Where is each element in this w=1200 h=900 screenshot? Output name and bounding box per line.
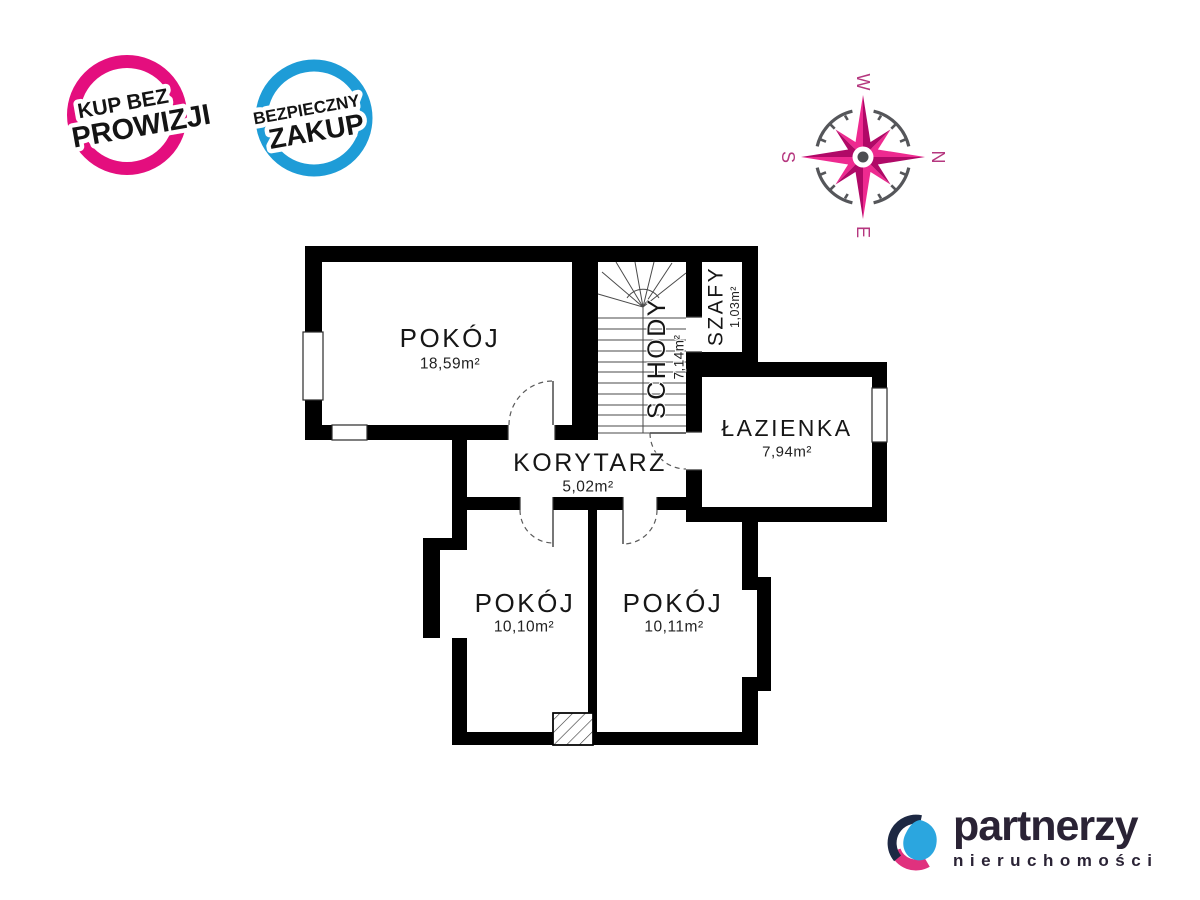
logo-blue-drop — [903, 820, 936, 860]
window-bottom-room1 — [332, 425, 367, 440]
brand-subtitle: nieruchomości — [953, 852, 1158, 869]
door-arc-room1 — [509, 381, 553, 425]
label-closet-area: 1,03m² — [728, 286, 742, 328]
agency-logo-icon — [885, 811, 947, 875]
label-closet-name: SZAFY — [705, 266, 728, 346]
label-room3-name: POKÓJ — [623, 588, 724, 618]
label-bathroom-name: ŁAZIENKA — [721, 415, 852, 441]
label-room2-name: POKÓJ — [475, 588, 576, 618]
window-bathroom — [872, 388, 887, 442]
agency-logo: partnerzy nieruchomości — [885, 805, 1175, 885]
floorplan-page: KUP BEZ PROWIZJI BEZPIECZNY ZAKUP — [0, 0, 1200, 900]
label-room2-area: 10,10m² — [494, 619, 554, 636]
label-bathroom-area: 7,94m² — [762, 444, 812, 461]
label-corridor-name: KORYTARZ — [513, 449, 667, 477]
label-room3-area: 10,11m² — [644, 619, 703, 636]
label-stairs-name: SCHODY — [643, 297, 671, 419]
door-arc-room3 — [623, 510, 657, 544]
label-room1-area: 18,59m² — [420, 356, 480, 373]
label-room1-name: POKÓJ — [400, 323, 501, 353]
door-arc-room2 — [520, 510, 553, 543]
label-stairs-area: 7,14m² — [672, 334, 687, 379]
walls — [305, 246, 887, 745]
window-left — [303, 332, 323, 400]
label-corridor-area: 5,02m² — [562, 479, 613, 496]
brand-name: partnerzy — [953, 805, 1158, 848]
floorplan-drawing: POKÓJ 18,59m² SCHODY 7,14m² SZAFY 1,03m²… — [0, 0, 1200, 900]
chimney — [553, 713, 593, 745]
